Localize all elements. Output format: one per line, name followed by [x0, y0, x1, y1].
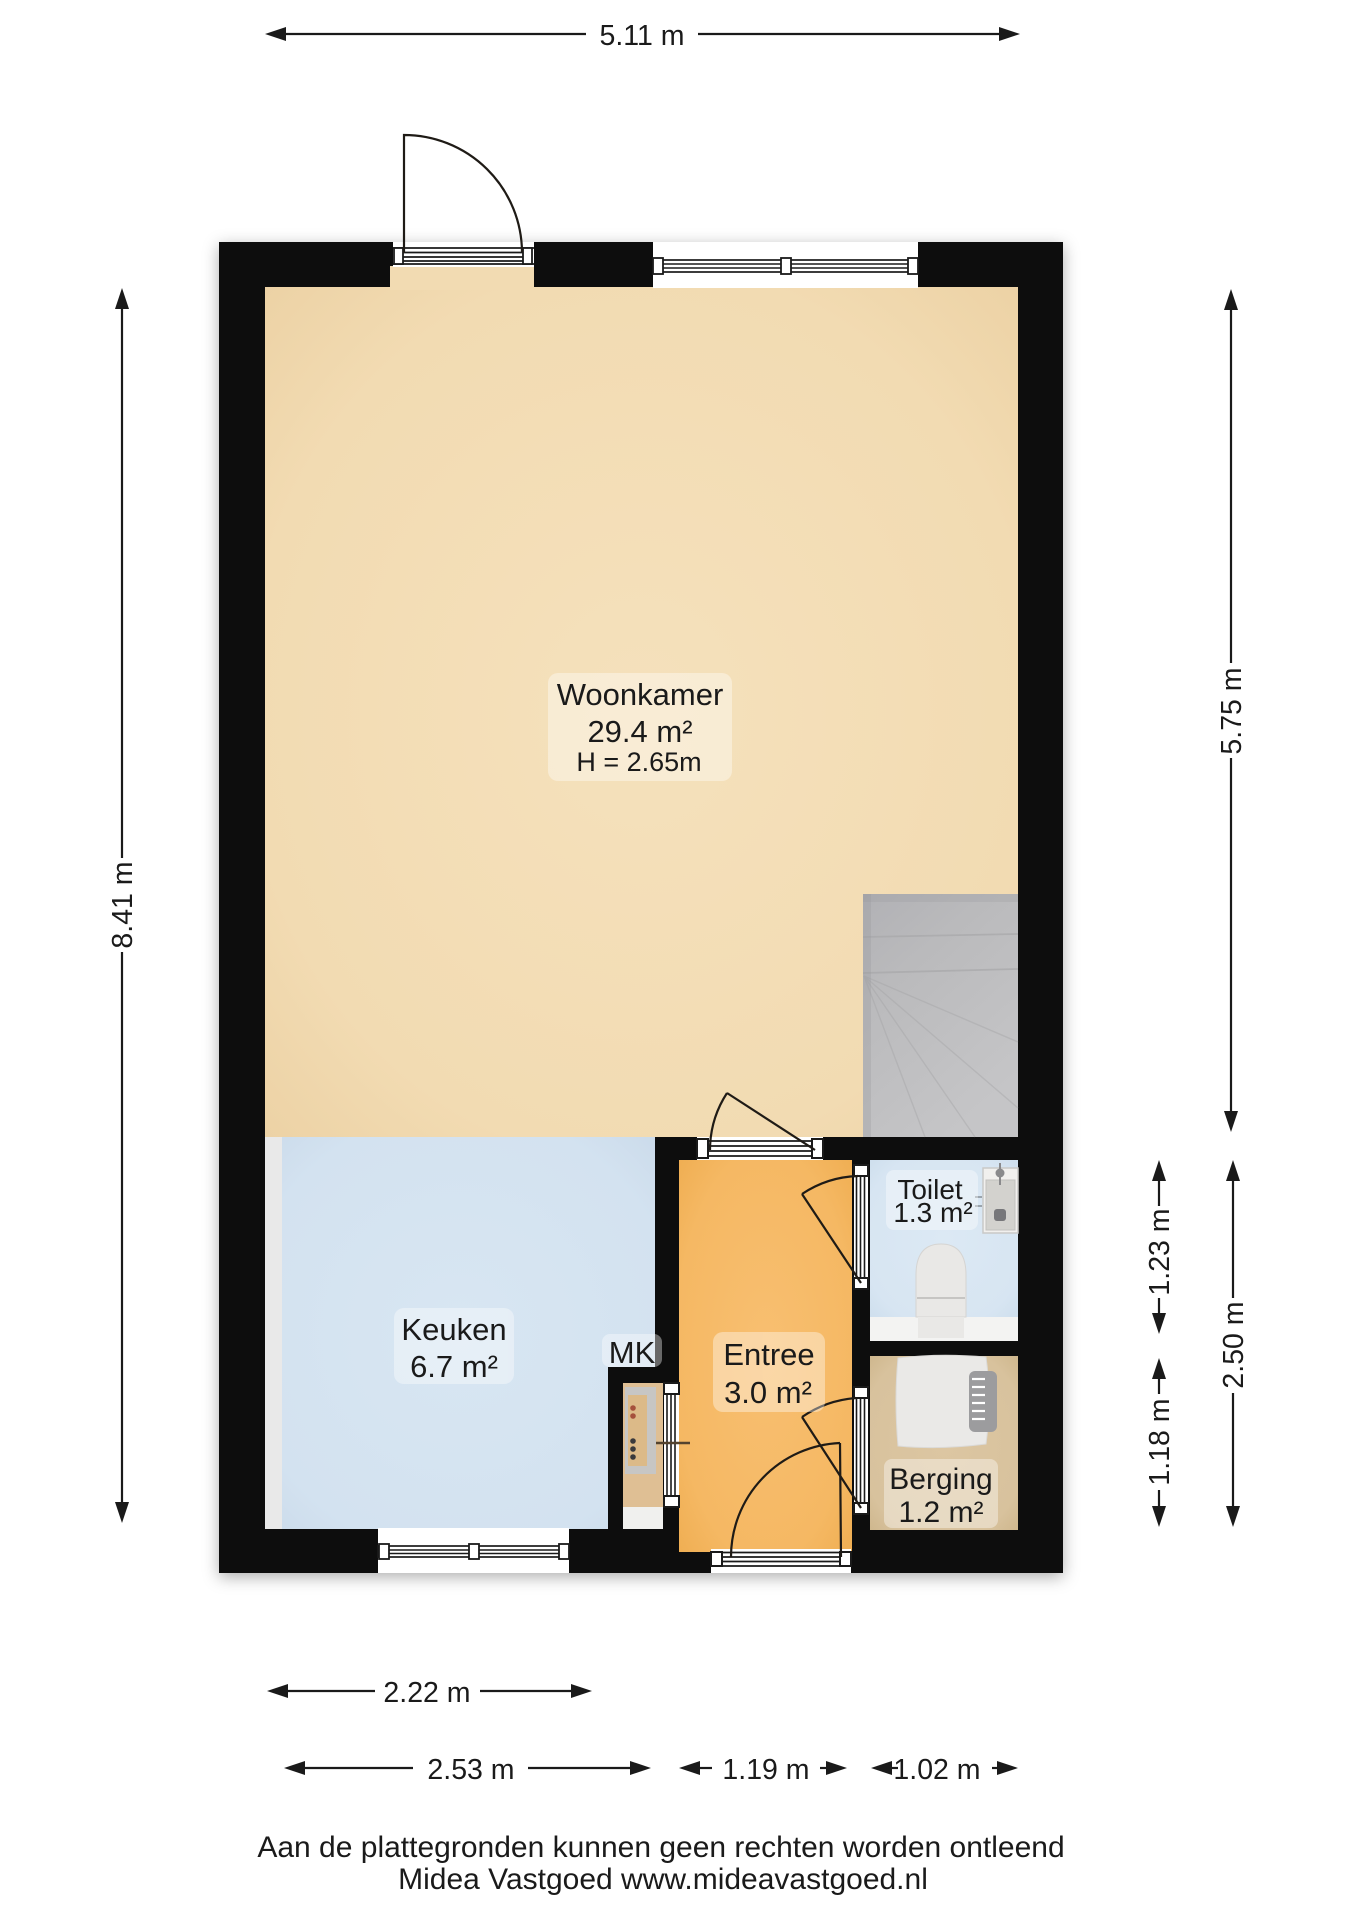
svg-text:6.7 m²: 6.7 m²	[410, 1349, 498, 1384]
svg-text:Keuken: Keuken	[401, 1312, 506, 1347]
svg-text:2.53 m: 2.53 m	[427, 1754, 514, 1786]
svg-text:1.23 m: 1.23 m	[1144, 1208, 1176, 1295]
svg-text:1.18 m: 1.18 m	[1144, 1398, 1176, 1485]
svg-text:1.02 m: 1.02 m	[893, 1754, 980, 1786]
svg-text:Berging: Berging	[889, 1463, 992, 1496]
svg-text:5.75 m: 5.75 m	[1216, 667, 1248, 754]
svg-text:H = 2.65m: H = 2.65m	[576, 747, 701, 777]
svg-text:Entree: Entree	[723, 1337, 814, 1372]
svg-text:8.41 m: 8.41 m	[107, 861, 139, 948]
svg-text:1.2 m²: 1.2 m²	[898, 1496, 983, 1529]
svg-text:5.11 m: 5.11 m	[599, 20, 684, 52]
svg-text:Aan de plattegronden kunnen ge: Aan de plattegronden kunnen geen rechten…	[257, 1831, 1064, 1864]
svg-text:MK: MK	[609, 1335, 656, 1370]
svg-text:1.19 m: 1.19 m	[722, 1754, 809, 1786]
svg-text:1.3 m²: 1.3 m²	[893, 1197, 972, 1228]
svg-text:29.4 m²: 29.4 m²	[587, 714, 692, 749]
svg-text:2.50 m: 2.50 m	[1218, 1301, 1250, 1388]
svg-text:Midea Vastgoed www.mideavastgo: Midea Vastgoed www.mideavastgoed.nl	[398, 1863, 928, 1896]
svg-text:3.0 m²: 3.0 m²	[724, 1375, 812, 1410]
svg-text:2.22 m: 2.22 m	[383, 1677, 470, 1709]
svg-text:Woonkamer: Woonkamer	[557, 677, 724, 712]
